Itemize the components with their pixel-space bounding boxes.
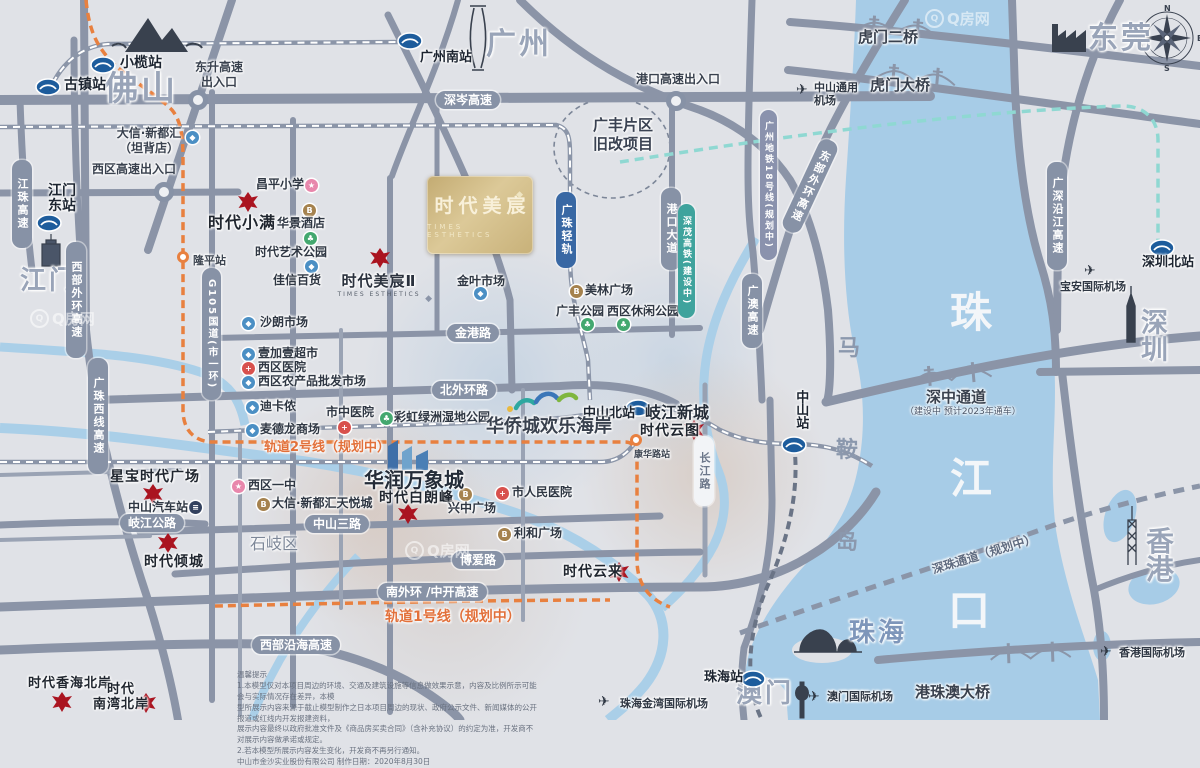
road-label-vertical: G105国道(市一环) <box>202 268 221 400</box>
poi-label: 华景酒店 <box>277 217 325 231</box>
times-project-label: 时代云图 <box>640 423 700 439</box>
poi-icon: ★ <box>232 480 245 493</box>
poi-label: 利和广场 <box>514 527 562 541</box>
road-label: 博爱路 <box>452 551 504 569</box>
poi-icon: ★ <box>305 179 318 192</box>
road-network <box>0 0 1200 720</box>
road-label: 北外环路 <box>432 381 496 399</box>
poi-label: 昌平小学 <box>256 178 304 192</box>
rail-station-icon <box>740 670 766 688</box>
road-label-vertical: 江珠高速 <box>12 160 32 248</box>
poi-icon: + <box>338 421 351 434</box>
poi-label: 壹加壹超市 <box>258 347 318 361</box>
area-label: 西区高速出入口 <box>92 162 176 177</box>
rail-station-icon <box>35 78 61 96</box>
road-label-vertical: 广珠轻轨 <box>556 192 576 268</box>
brand-diamond-icon: ◆ <box>425 294 432 304</box>
road-label: 金港路 <box>447 324 499 342</box>
area-label: 石岐区 <box>250 534 298 554</box>
times-project-logo-icon <box>398 504 418 524</box>
crc-mixc-buildings-icon <box>388 440 428 470</box>
airplane-icon: ✈ <box>598 695 610 709</box>
main-project-name-en: TIMES ESTHETICS <box>427 223 533 239</box>
poi-icon: + <box>496 487 509 500</box>
interchange-icon <box>188 90 208 110</box>
metro-station-label: 康华路站 <box>634 447 670 460</box>
rail-station-icon <box>397 32 423 50</box>
poi-icon: ♣ <box>304 232 317 245</box>
road-label-vertical: 长江路 <box>694 436 714 506</box>
area-label: 大信·新都汇 （坦背店） <box>112 126 186 156</box>
foshan-mountain-icon <box>125 18 188 52</box>
times-project-label: 时代 南湾北岸 <box>93 683 149 713</box>
poi-icon: ◆ <box>242 376 255 389</box>
rail-station-icon <box>90 56 116 74</box>
project2-name: 时代美宸Ⅱ <box>334 270 424 291</box>
poi-label: 金叶市场 <box>457 275 505 289</box>
rail-station-label: 广州南站 <box>420 51 472 65</box>
transit-line-label: 虎门二桥 <box>858 26 918 47</box>
airport-label: 澳门国际机场 <box>827 691 893 704</box>
water-label: 马 <box>838 338 862 360</box>
airplane-icon: ✈ <box>1100 645 1112 659</box>
poi-label: 西区农产品批发市场 <box>258 375 366 389</box>
metro-station-label: 隆平站 <box>193 252 226 268</box>
poi-label: 美林广场 <box>585 284 633 298</box>
poi-icon: ◆ <box>242 317 255 330</box>
poi-icon: ≡ <box>189 501 202 514</box>
compass-n: N <box>1164 4 1171 13</box>
road-label: 南外环 /中开高速 <box>378 583 487 601</box>
city-label: 广州 <box>486 30 552 60</box>
area-label: 华润万象城 <box>364 468 464 493</box>
water-label: 岛 <box>836 532 860 554</box>
times-project-label: 时代倾城 <box>144 554 204 570</box>
road-label-vertical: 广澳高速 <box>742 274 762 348</box>
airport-label: 珠海金湾国际机场 <box>620 698 708 711</box>
area-label: 华侨城欢乐海岸 <box>486 416 612 439</box>
interchange-icon <box>666 91 686 111</box>
poi-label: 兴中广场 <box>448 502 496 516</box>
road-label: 岐江公路 <box>120 514 184 532</box>
times-project-label: 时代云来 <box>563 564 623 580</box>
rail-station-label: 小榄站 <box>120 56 162 71</box>
brand-diamond-icon: ◆ <box>516 190 523 200</box>
times-logo-icon <box>370 248 390 268</box>
poi-icon: B <box>257 498 270 511</box>
poi-icon: ◆ <box>246 424 259 437</box>
airplane-icon: ✈ <box>808 690 820 704</box>
airport-label: 中山通用 机场 <box>814 82 858 107</box>
oct-harbor-waves-icon <box>507 394 576 412</box>
poi-label: 时代艺术公园 <box>255 246 327 260</box>
times-project-logo-icon <box>238 192 258 212</box>
transit-line-label: 港珠澳大桥 <box>915 681 990 702</box>
water-label: 鞍 <box>836 440 860 462</box>
rail-station-icon <box>781 436 807 454</box>
road-label: 西部沿海高速 <box>252 636 340 654</box>
transit-line-label: 轨道2号线（规划中） <box>264 436 390 455</box>
area-label: 广丰片区 旧改项目 <box>578 116 668 154</box>
times-project-logo-icon <box>52 692 72 712</box>
airplane-icon: ✈ <box>1084 264 1096 278</box>
poi-icon: ◆ <box>246 401 259 414</box>
project2-name-en: TIMES ESTHETICS <box>334 291 424 298</box>
shenzhen-pingan-tower-icon <box>1127 286 1135 342</box>
poi-label: 佳信百货 <box>273 274 321 288</box>
jiangmen-building-icon <box>42 234 60 266</box>
poi-label: 西区一中 <box>248 479 296 493</box>
poi-icon: B <box>498 528 511 541</box>
poi-label: 市中医院 <box>326 406 374 420</box>
road-label-vertical: 广珠西线高速 <box>88 358 108 474</box>
rail-station-label: 珠海站 <box>704 671 743 685</box>
interchange-icon <box>154 182 174 202</box>
poi-label: 西区休闲公园 <box>607 305 679 319</box>
rail-station-label: 古镇站 <box>64 78 106 93</box>
poi-icon: ◆ <box>242 348 255 361</box>
dongguan-factory-icon <box>1052 24 1086 52</box>
poi-label: 西区医院 <box>258 361 306 375</box>
rail-station-label: 江门 东站 <box>48 184 76 215</box>
disclaimer-text: 温馨提示 1.本模型仅对本项目周边的环境、交通及建筑设施等信息做效果示意，内容及… <box>237 670 537 768</box>
transit-line-label: （建设中 预计2023年通车） <box>905 404 1021 417</box>
poi-label: 沙朗市场 <box>260 316 308 330</box>
compass-s: S <box>1164 64 1170 73</box>
road-label-vertical: 广深沿江高速 <box>1047 162 1067 270</box>
poi-icon: ♣ <box>581 318 594 331</box>
transit-line-label: 虎门大桥 <box>870 74 930 95</box>
area-label: 港口高速出入口 <box>636 72 720 87</box>
airplane-icon: ✈ <box>796 83 808 97</box>
metro-station-icon <box>177 251 189 263</box>
canton-tower-icon <box>470 6 486 70</box>
water-label: 珠 <box>950 292 994 334</box>
poi-icon: ◆ <box>474 287 487 300</box>
area-label: 岐江新城 <box>645 403 709 423</box>
times-project-logo-icon <box>158 533 178 553</box>
airport-label: 宝安国际机场 <box>1060 281 1126 294</box>
road-label-vertical: 深茂高铁(建设中) <box>678 204 695 318</box>
city-label: 珠海 <box>849 620 907 646</box>
poi-icon: + <box>242 362 255 375</box>
rail-station-label: 深圳北站 <box>1142 256 1194 270</box>
city-label: 香港 <box>1146 528 1200 584</box>
poi-label: 彩虹绿洲湿地公园 <box>394 411 490 425</box>
rail-station-icon <box>36 214 62 232</box>
map-canvas: 时代美宸 TIMES ESTHETICS ◆ 时代美宸Ⅱ TIMES ESTHE… <box>0 0 1200 720</box>
poi-icon: B <box>570 285 583 298</box>
project2-block: 时代美宸Ⅱ TIMES ESTHETICS ◆ <box>334 270 424 298</box>
rail-station-label: 中山站 <box>793 390 807 429</box>
water-label: 口 <box>948 590 992 632</box>
city-label: 东莞 <box>1088 24 1154 54</box>
poi-icon: ♣ <box>380 412 393 425</box>
city-label: 深圳 <box>1141 310 1200 364</box>
road-label-vertical: 西部外环高速 <box>66 242 86 358</box>
road-label: 深岑高速 <box>436 91 500 109</box>
poi-label: 麦德龙商场 <box>260 423 320 437</box>
area-label: 东升高速 出入口 <box>188 60 250 90</box>
poi-icon: ◆ <box>186 131 199 144</box>
poi-icon: ♣ <box>617 318 630 331</box>
poi-label: 迪卡侬 <box>260 400 296 414</box>
road-label-vertical: 广州地铁18号线(规划中) <box>760 110 777 260</box>
city-label: 佛山 <box>104 72 178 106</box>
times-project-label: 时代小满 <box>208 214 276 232</box>
poi-icon: ◆ <box>305 260 318 273</box>
road-label: 中山三路 <box>305 515 369 533</box>
water-label: 江 <box>950 458 994 500</box>
transit-line-label: 轨道1号线（规划中） <box>385 606 521 626</box>
poi-label: 中山汽车站 <box>128 501 188 515</box>
poi-label: 大信·新都汇天悦城 <box>272 497 373 511</box>
main-project-card: 时代美宸 TIMES ESTHETICS ◆ <box>427 176 533 254</box>
airport-label: 香港国际机场 <box>1119 647 1185 660</box>
poi-label: 广丰公园 <box>556 305 604 319</box>
poi-label: 市人民医院 <box>512 486 572 500</box>
times-project-label: 星宝时代广场 <box>110 469 200 485</box>
